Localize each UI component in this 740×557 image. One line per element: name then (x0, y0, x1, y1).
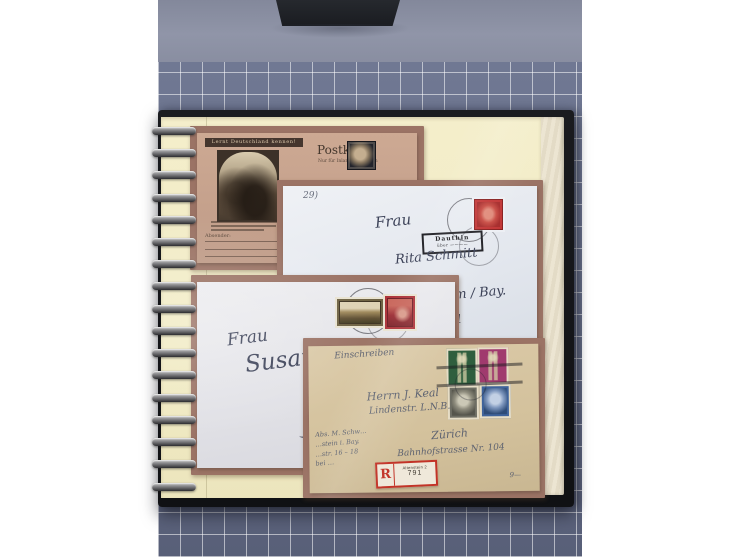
pencil-corner-note: 29) (303, 192, 318, 201)
tan-cover-mount: Einschreiben Herrn J. Keal Lindenstr. L.… (303, 338, 545, 498)
spiral-ring (152, 460, 196, 468)
spiral-ring (152, 127, 196, 135)
tan-registered-envelope: Einschreiben Herrn J. Keal Lindenstr. L.… (308, 344, 540, 493)
spiral-ring (152, 282, 196, 290)
slogan-banner: Lernt Deutschland kennen! (205, 138, 303, 147)
spiral-ring (152, 260, 196, 268)
spiral-ring (152, 327, 196, 335)
stamp-building-carmine (383, 294, 417, 331)
spiral-ring (152, 371, 196, 379)
dark-box-object (276, 0, 400, 26)
spiral-ring (152, 171, 196, 179)
photo-of-stamp-album: Lernt Deutschland kennen! Postkarte Nur … (0, 0, 740, 557)
spiral-ring (152, 216, 196, 224)
circular-postmark (454, 368, 486, 400)
spiral-ring (152, 305, 196, 313)
handwriting-einschreiben: Einschreiben (334, 349, 395, 362)
handwriting-name: Rita Schmitt (395, 246, 478, 266)
table-surface (158, 0, 582, 62)
registration-label: R Altenstein 2 791 (375, 460, 438, 489)
registration-letter: R (377, 464, 395, 487)
spiral-ring (152, 483, 196, 491)
handwriting-sender-line1: Abs. M. Schw… (315, 428, 367, 439)
stamp-hindenburg-red (472, 197, 505, 232)
handwriting-addressee: Herrn J. Keal (366, 387, 439, 403)
spiral-ring (152, 149, 196, 157)
handwriting-salutation: Frau (226, 328, 269, 350)
handwriting-addressee-line2: Lindenstr. L.N.B. (369, 402, 451, 417)
handwriting-salutation: Frau (374, 212, 412, 231)
spiral-ring (152, 238, 196, 246)
stamp-landscape-olive (335, 297, 385, 328)
spiral-ring (152, 416, 196, 424)
pencil-note: 9— (510, 472, 522, 479)
spiral-ring (152, 394, 196, 402)
postcard-vignette-picture (217, 150, 279, 222)
spiral-ring (152, 349, 196, 357)
spiral-ring (152, 194, 196, 202)
caption-lines (211, 221, 285, 233)
handwriting-city: Zürich (431, 427, 469, 441)
handwriting-sender-line3: …str. 16 – 18 (315, 448, 358, 458)
spiral-ring (152, 438, 196, 446)
sender-label: Absender: (205, 233, 231, 239)
imprinted-stamp-portrait (347, 141, 376, 170)
registration-number: 791 (394, 469, 435, 478)
handwriting-sender-line4: bei … (315, 459, 334, 467)
handwriting-street: Bahnhofstrasse Nr. 104 (397, 443, 505, 459)
arch-scene (219, 152, 277, 220)
object-shadow (270, 24, 410, 38)
